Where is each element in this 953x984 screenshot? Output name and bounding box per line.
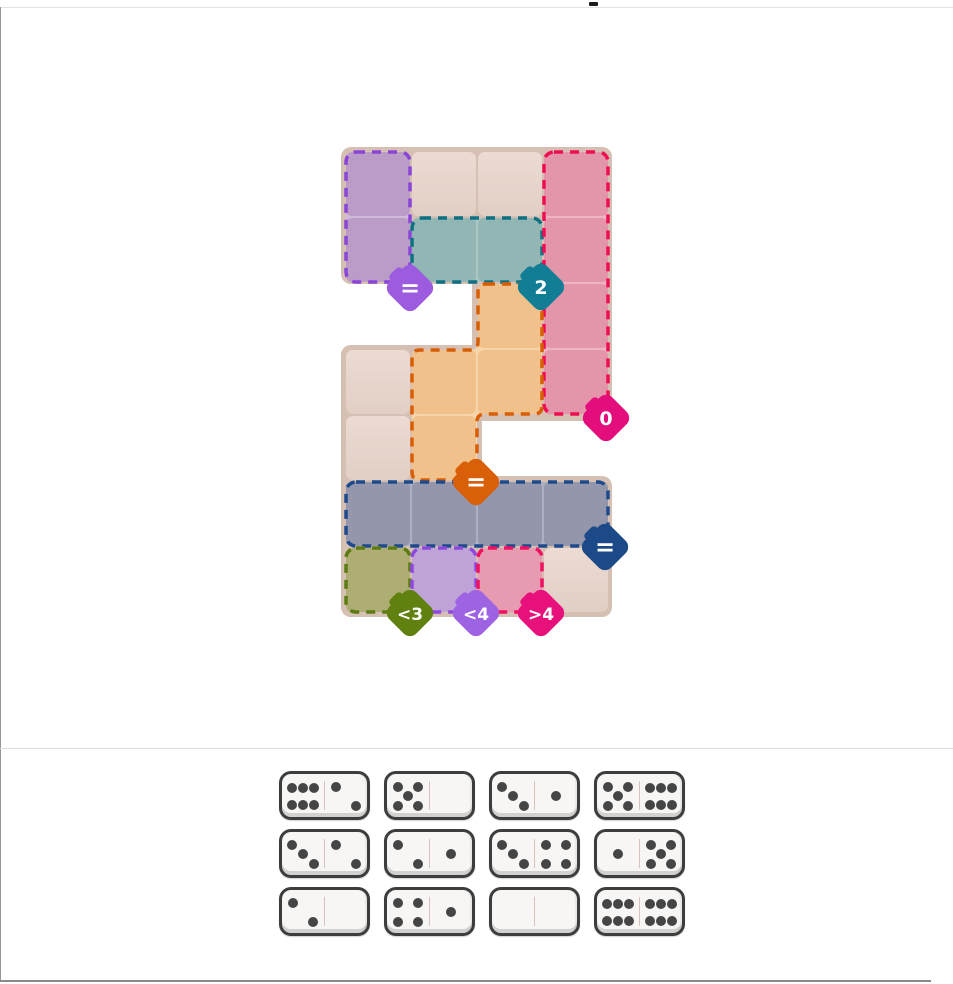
pip: [645, 916, 655, 926]
pip: [403, 791, 413, 801]
pip: [309, 859, 319, 869]
pip: [308, 917, 318, 927]
domino-divider: [429, 839, 430, 868]
region-cell[interactable]: [346, 482, 410, 546]
domino-6-6[interactable]: [594, 887, 685, 936]
pip: [603, 782, 613, 792]
pip: [541, 859, 551, 869]
pip: [666, 840, 676, 850]
badge-label: 2: [534, 277, 547, 299]
region-purple-tall: [346, 152, 410, 282]
pip: [561, 859, 571, 869]
board-root: =20==<3<4>4: [341, 147, 633, 640]
pip: [298, 800, 308, 810]
pip: [646, 859, 656, 869]
domino-2-1[interactable]: [384, 829, 475, 878]
pip: [508, 849, 518, 859]
pip: [613, 899, 623, 909]
pip: [666, 859, 676, 869]
pip: [646, 840, 656, 850]
pip: [624, 916, 634, 926]
pip: [623, 801, 633, 811]
badge-label: <4: [463, 605, 489, 625]
region-cell[interactable]: [412, 350, 476, 414]
domino-divider: [429, 781, 430, 810]
domino-5-0[interactable]: [384, 771, 475, 820]
pip: [497, 840, 507, 850]
pip: [656, 899, 666, 909]
domino-3-2[interactable]: [279, 829, 370, 878]
bottom-frame-border: [0, 980, 931, 982]
board-cell-2-0[interactable]: [478, 152, 542, 216]
domino-3-1[interactable]: [489, 771, 580, 820]
domino-divider: [534, 839, 535, 868]
region-cell[interactable]: [544, 152, 608, 216]
badge-label: =: [400, 274, 420, 302]
pip: [331, 782, 341, 792]
domino-0-0[interactable]: [489, 887, 580, 936]
pip: [645, 800, 655, 810]
pips-game-page: =20==<3<4>4: [0, 0, 953, 984]
pip: [331, 840, 341, 850]
pip: [497, 782, 507, 792]
pip: [602, 916, 612, 926]
pip: [561, 840, 571, 850]
pip: [667, 916, 677, 926]
pip: [656, 783, 666, 793]
domino-divider: [324, 781, 325, 810]
domino-divider: [429, 897, 430, 926]
pip: [656, 849, 666, 859]
domino-divider: [639, 839, 640, 868]
region-cell[interactable]: [412, 218, 476, 282]
pip: [298, 783, 308, 793]
pip: [446, 907, 456, 917]
pip: [645, 783, 655, 793]
badge-label: =: [466, 468, 486, 496]
pip: [413, 801, 423, 811]
pip: [613, 916, 623, 926]
pip: [667, 783, 677, 793]
pip: [602, 899, 612, 909]
board-svg: =20==<3<4>4: [0, 0, 953, 984]
board-cell-0-4[interactable]: [346, 416, 410, 480]
pip: [508, 791, 518, 801]
badge-label: =: [595, 533, 615, 561]
domino-divider: [639, 897, 640, 926]
domino-divider: [324, 839, 325, 868]
pip: [519, 859, 529, 869]
pip: [351, 801, 361, 811]
pip: [393, 782, 403, 792]
region-cell[interactable]: [478, 350, 542, 414]
pip: [287, 800, 297, 810]
pip: [446, 849, 456, 859]
domino-2-0[interactable]: [279, 887, 370, 936]
pip: [667, 800, 677, 810]
domino-6-2[interactable]: [279, 771, 370, 820]
board-cell-1-0[interactable]: [412, 152, 476, 216]
pip: [309, 783, 319, 793]
badge-label: >4: [528, 605, 554, 625]
region-cell[interactable]: [544, 218, 608, 282]
pip: [351, 859, 361, 869]
pip: [413, 859, 423, 869]
pip: [393, 898, 403, 908]
domino-divider: [534, 897, 535, 926]
pip: [603, 801, 613, 811]
pip: [541, 840, 551, 850]
pip: [413, 782, 423, 792]
pip: [393, 801, 403, 811]
pip: [645, 899, 655, 909]
pip: [287, 783, 297, 793]
pip: [287, 840, 297, 850]
domino-divider: [324, 897, 325, 926]
domino-divider: [639, 781, 640, 810]
badge-label: 0: [599, 408, 612, 430]
pip: [613, 791, 623, 801]
pip: [613, 849, 623, 859]
domino-5-6[interactable]: [594, 771, 685, 820]
pip: [393, 840, 403, 850]
tray-divider: [0, 748, 953, 749]
domino-divider: [534, 781, 535, 810]
board-cell-0-3[interactable]: [346, 350, 410, 414]
pip: [667, 899, 677, 909]
domino-3-4[interactable]: [489, 829, 580, 878]
pip: [413, 898, 423, 908]
pip: [624, 899, 634, 909]
pip: [298, 849, 308, 859]
pip: [393, 917, 403, 927]
pip: [288, 898, 298, 908]
badge-label: <3: [397, 605, 423, 625]
pip: [623, 782, 633, 792]
pip: [656, 800, 666, 810]
pip: [309, 800, 319, 810]
pip: [656, 916, 666, 926]
domino-4-1[interactable]: [384, 887, 475, 936]
pip: [519, 801, 529, 811]
pip: [413, 917, 423, 927]
region-cell[interactable]: [346, 152, 410, 216]
pip: [551, 791, 561, 801]
domino-1-5[interactable]: [594, 829, 685, 878]
